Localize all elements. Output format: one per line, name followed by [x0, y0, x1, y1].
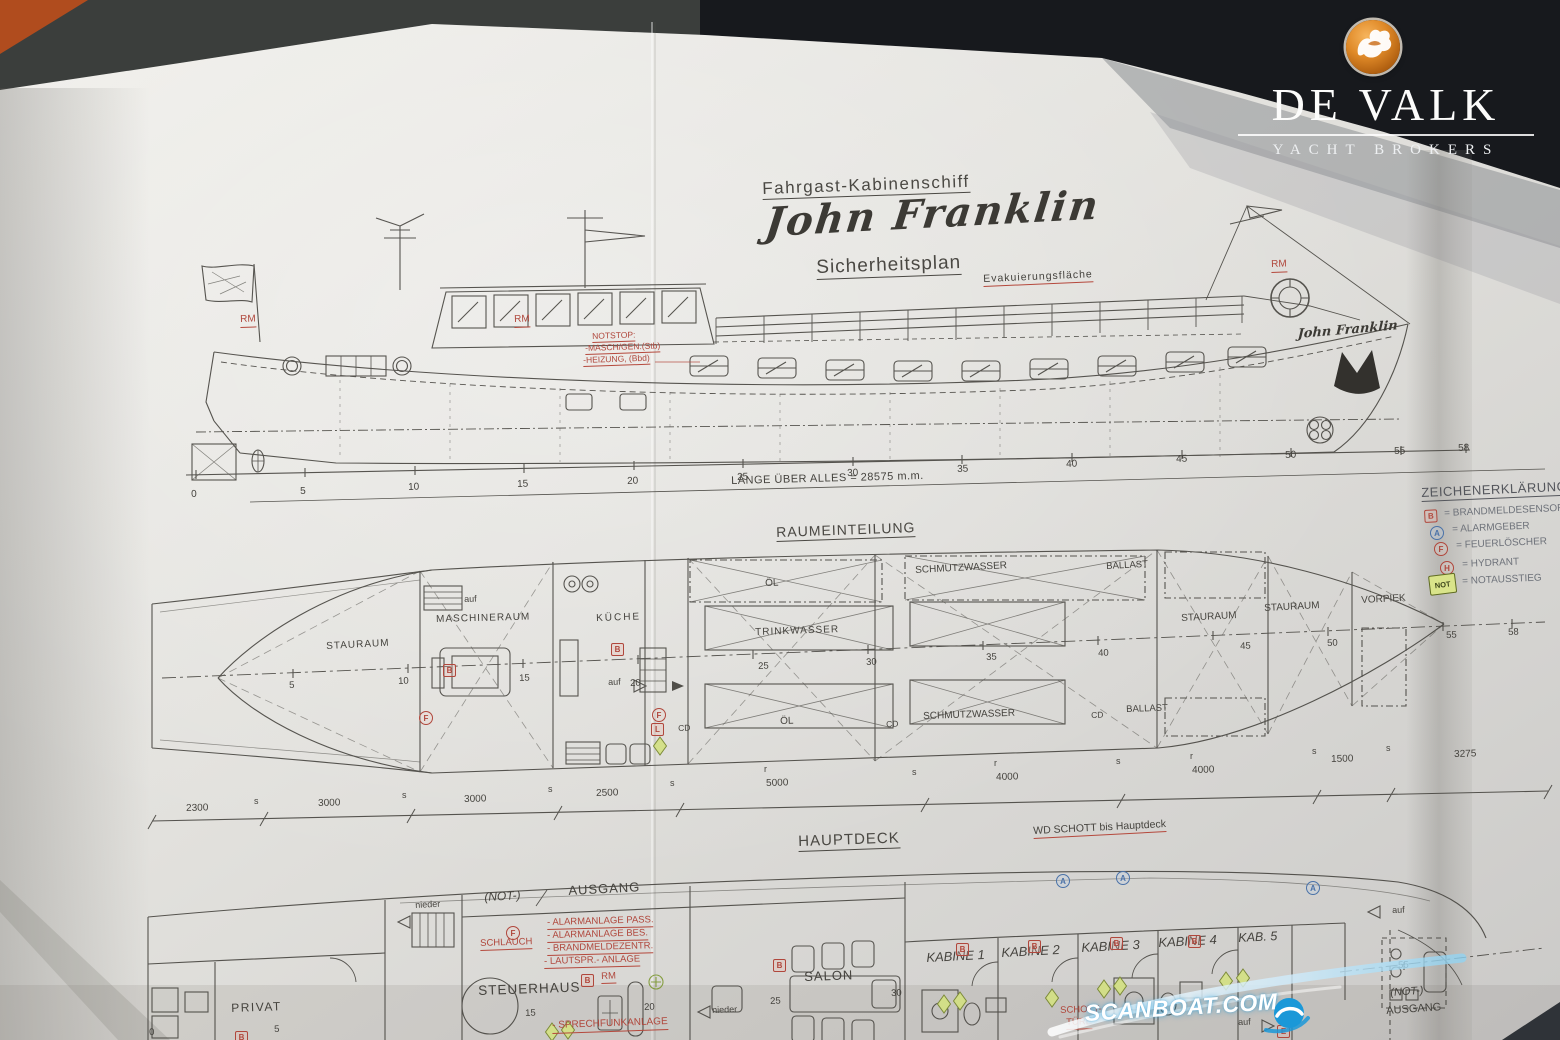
- rm-label-2: RM: [514, 314, 530, 327]
- dim-mark-s8: s: [1386, 744, 1391, 753]
- fire-sensor-icon-deck-2: B: [1028, 940, 1041, 953]
- hose-icon: F: [506, 926, 520, 940]
- fire-sensor-icon-deck-4: B: [1188, 935, 1201, 948]
- alarm-icon-deck-2: A: [1116, 871, 1130, 885]
- cd-label-2: CD: [886, 720, 899, 729]
- deck-num-20: 20: [644, 1003, 655, 1013]
- notstop-line-3: -HEIZUNG, (Bbd): [583, 354, 650, 367]
- side-scale-5: 5: [300, 487, 306, 498]
- nieder-label-1: nieder: [415, 900, 440, 911]
- oel-bottom-label: ÖL: [780, 717, 794, 728]
- plan-scale-40: 40: [1098, 649, 1109, 659]
- extinguisher-icon-plan-1: F: [419, 711, 433, 725]
- plan-scale-50: 50: [1327, 639, 1338, 649]
- side-scale-20: 20: [627, 477, 638, 488]
- alarm-icon-deck-3: A: [1306, 881, 1320, 895]
- schlauch-label: SCHLAUCH: [480, 937, 533, 951]
- falcon-badge-icon: [1346, 20, 1400, 74]
- ballast-bottom-label: BALLAST: [1126, 704, 1168, 715]
- main-deck-title: HAUPTDECK: [798, 830, 900, 851]
- deck-num-5: 5: [274, 1025, 280, 1035]
- brand-name: DE VALK: [1236, 78, 1536, 131]
- dim-3000a: 3000: [318, 798, 341, 809]
- plan-scale-5: 5: [289, 681, 295, 691]
- plan-scale-45: 45: [1240, 642, 1251, 652]
- alarm-note-4: - LAUTSPR.- ANLAGE: [544, 954, 640, 968]
- plan-scale-58: 58: [1508, 628, 1519, 638]
- plan-scale-20: 20: [630, 679, 641, 689]
- photo-of-ship-safety-plan: Fahrgast-Kabinenschiff John Franklin Sic…: [0, 0, 1560, 1040]
- legend-brandmelder-icon: B: [1424, 509, 1438, 523]
- side-scale-45: 45: [1176, 455, 1187, 466]
- legend-notausstieg-icon: NOT: [1428, 573, 1457, 596]
- fire-sensor-icon-deck-3: B: [1110, 937, 1123, 950]
- falcon-icon: [1346, 20, 1400, 74]
- deck-num-55: 55: [1398, 961, 1409, 971]
- plan-scale-30: 30: [866, 658, 877, 668]
- plan-scale-55: 55: [1446, 631, 1457, 641]
- deck-num-25: 25: [770, 997, 781, 1007]
- kab-5-label: KAB. 5: [1238, 930, 1278, 945]
- ballast-top-label: BALLAST: [1106, 560, 1148, 572]
- legend-feuerloescher-icon: F: [1434, 542, 1448, 556]
- salon-label: SALON: [804, 968, 854, 983]
- e-symbol-icon: E: [1277, 1025, 1290, 1038]
- auf-label-1: auf: [464, 595, 477, 605]
- side-scale-35: 35: [957, 465, 968, 476]
- cd-label-1: CD: [678, 724, 691, 733]
- rm-label-1: RM: [240, 314, 256, 327]
- privat-label: PRIVAT: [231, 1000, 282, 1014]
- dim-mark-s2: s: [402, 791, 407, 800]
- dim-mark-r3: r: [1190, 752, 1193, 761]
- rm-label-4: RM: [601, 971, 616, 983]
- alarm-icon-deck-1: A: [1056, 874, 1070, 888]
- legend-alarmgeber-icon: A: [1430, 526, 1444, 540]
- plan-scale-10: 10: [398, 677, 409, 687]
- cd-label-3: CD: [1091, 711, 1104, 720]
- brand-tagline: YACHT BROKERS: [1236, 142, 1536, 159]
- fire-sensor-icon-steuerhaus: B: [581, 974, 594, 987]
- l-symbol-icon: L: [651, 723, 664, 736]
- not-exit-label: (NOT-): [484, 889, 521, 903]
- plan-scale-35: 35: [986, 653, 997, 663]
- side-scale-10: 10: [408, 483, 419, 494]
- dim-1500: 1500: [1331, 754, 1354, 765]
- deck-num-0: 0: [149, 1028, 155, 1038]
- dim-4000b: 4000: [1192, 765, 1215, 776]
- fire-sensor-icon-salon: B: [773, 959, 786, 972]
- dim-5000: 5000: [766, 778, 789, 789]
- auf-label-4: auf: [1392, 906, 1405, 916]
- side-scale-55: 55: [1394, 447, 1405, 458]
- dim-mark-s1: s: [254, 797, 259, 806]
- fire-sensor-icon-privat: B: [235, 1031, 248, 1040]
- dim-4000a: 4000: [996, 772, 1019, 783]
- dim-3000b: 3000: [464, 794, 487, 805]
- rm-label-3: RM: [1271, 259, 1287, 272]
- plan-scale-25: 25: [758, 662, 769, 672]
- side-scale-0: 0: [191, 490, 197, 501]
- dim-mark-r1: r: [764, 765, 767, 774]
- deck-num-15: 15: [525, 1009, 536, 1019]
- deck-num-30: 30: [891, 989, 902, 999]
- dim-mark-s6: s: [1116, 757, 1121, 766]
- dim-2500: 2500: [596, 788, 619, 799]
- kueche-label: KÜCHE: [596, 612, 641, 624]
- dim-mark-s4: s: [670, 779, 675, 788]
- dim-mark-s5: s: [912, 768, 917, 777]
- dim-mark-s7: s: [1312, 747, 1317, 756]
- plan-scale-15: 15: [519, 674, 530, 684]
- side-scale-40: 40: [1066, 460, 1077, 471]
- brand-rule: [1238, 134, 1534, 136]
- auf-label-2: auf: [608, 678, 621, 688]
- extinguisher-icon-plan-2: F: [652, 708, 666, 722]
- dim-3275: 3275: [1454, 749, 1477, 760]
- fire-sensor-icon-deck-1: B: [956, 943, 969, 956]
- side-scale-15: 15: [517, 480, 528, 491]
- dim-mark-s3: s: [548, 785, 553, 794]
- oel-top-label: ÖL: [765, 579, 779, 590]
- not-exit-label-2: (NOT-): [1390, 986, 1424, 1000]
- side-scale-50: 50: [1285, 451, 1296, 462]
- fire-sensor-icon-plan-2: B: [611, 643, 624, 656]
- dim-mark-r2: r: [994, 759, 997, 768]
- green-plus-icon: [649, 975, 663, 989]
- nieder-label-2: nieder: [712, 1005, 737, 1015]
- auf-label-3: auf: [1238, 1018, 1251, 1028]
- dim-2300: 2300: [186, 803, 209, 814]
- side-scale-58: 58: [1458, 444, 1469, 455]
- fire-sensor-icon-plan-1: B: [443, 664, 456, 677]
